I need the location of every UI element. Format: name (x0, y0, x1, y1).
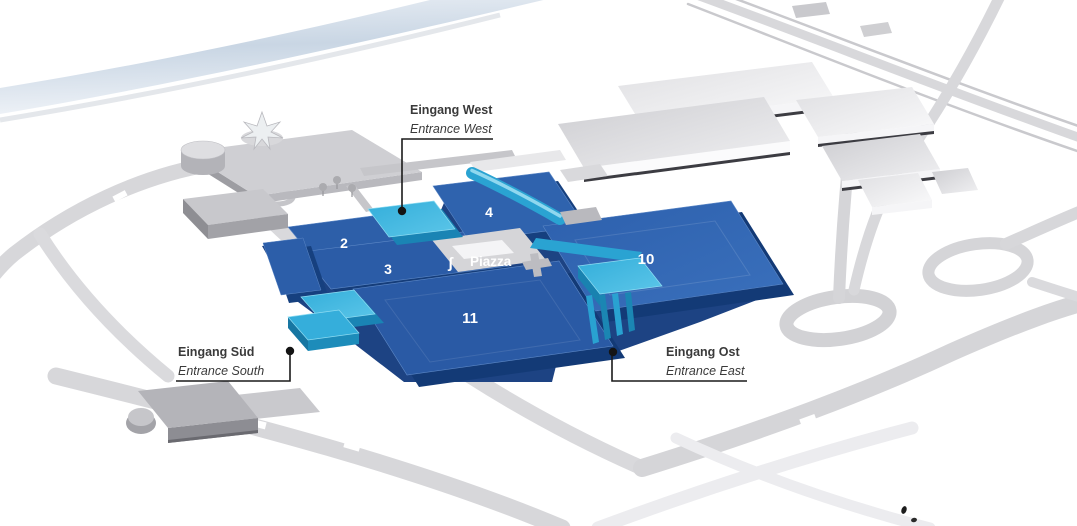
tank-cylinder-top (181, 141, 225, 159)
entrance-east-label-de: Eingang Ost (666, 345, 740, 359)
garage-annex-top (128, 408, 154, 426)
road-right-upper (1006, 206, 1077, 244)
topright-block-1 (792, 2, 830, 18)
entrance-south-annotation: Eingang Süd Entrance South (176, 345, 294, 381)
hall-3-label: 3 (384, 261, 392, 277)
entrance-east-marker-dot (609, 348, 617, 356)
entrance-south-label-en: Entrance South (178, 364, 264, 378)
fairground-map: 2 3 4 10 11 ʃ Piazza Eingang West Entran… (0, 0, 1077, 526)
entrance-west-label-en: Entrance West (410, 122, 492, 136)
road-bottom-main (56, 376, 562, 526)
entrance-east-annotation: Eingang Ost Entrance East (609, 345, 747, 381)
entrance-east-label-en: Entrance East (666, 364, 745, 378)
hall-11-label: 11 (462, 310, 478, 327)
piazza-label: Piazza (470, 254, 512, 269)
hall-4-label: 4 (485, 204, 493, 220)
map-canvas: 2 3 4 10 11 ʃ Piazza Eingang West Entran… (0, 0, 1077, 526)
river-band (0, 0, 585, 120)
topright-block-2 (860, 22, 892, 37)
hall-10-label: 10 (638, 251, 655, 268)
entrance-west-label-de: Eingang West (410, 103, 493, 117)
entrance-south-marker-dot (286, 347, 294, 355)
gray-hall-tiny (932, 168, 978, 194)
road-right-exit (1032, 282, 1077, 302)
tree-dot-1 (900, 505, 907, 514)
hall-2-label: 2 (340, 235, 348, 251)
piazza-icon: ʃ (447, 255, 454, 272)
entrance-south-label-de: Eingang Süd (178, 345, 254, 359)
road-left-loop (0, 164, 212, 282)
road-left-down (40, 234, 168, 376)
entrance-west-marker-dot (398, 207, 406, 215)
